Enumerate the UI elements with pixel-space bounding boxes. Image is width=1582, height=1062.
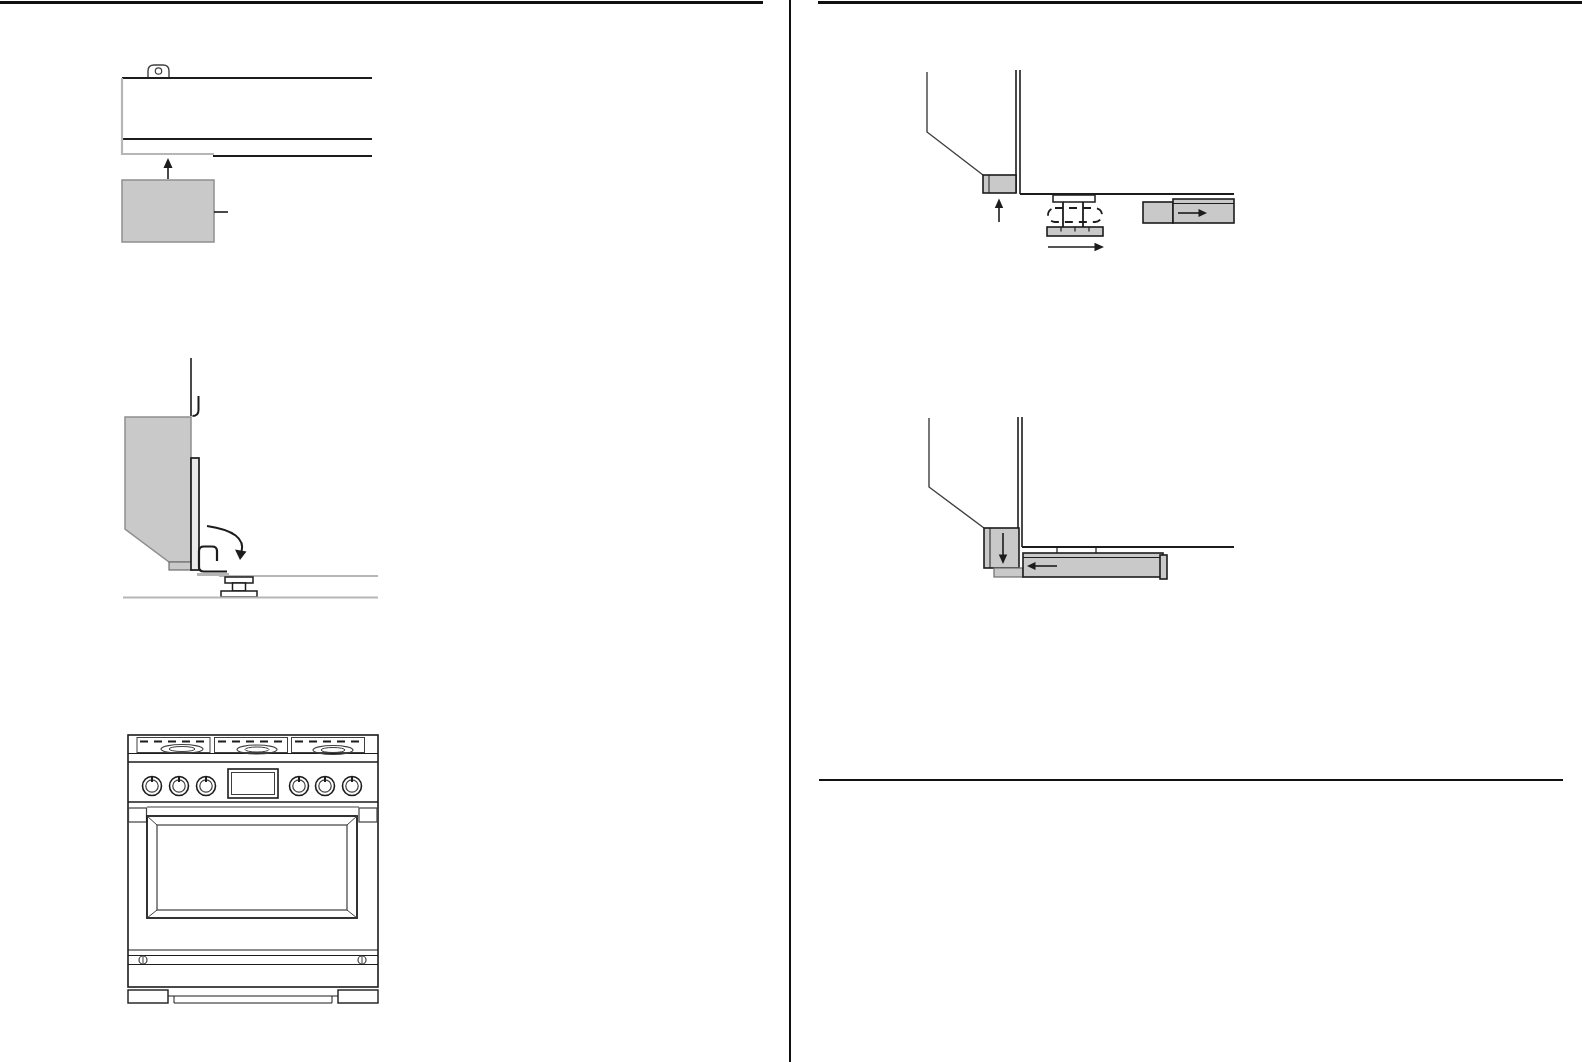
- rotate-down-arrow-icon: [235, 550, 247, 561]
- range-corner-profile: [927, 72, 983, 175]
- control-knobs: [143, 777, 362, 796]
- knob: [343, 777, 362, 796]
- drawer-screw-left: [139, 956, 147, 964]
- control-display: [228, 769, 278, 798]
- corner-bracket: [984, 528, 1019, 568]
- knob: [316, 777, 335, 796]
- foot-plate: [225, 577, 253, 583]
- up-arrow-icon: [995, 199, 1003, 209]
- up-arrow-icon: [164, 158, 173, 168]
- figure-kick-panel-rotate: [123, 358, 378, 598]
- panel-edge: [191, 458, 199, 570]
- knob: [197, 777, 216, 796]
- leg-mount-plate: [1053, 195, 1095, 202]
- dashed-leg-outline: [1048, 208, 1102, 222]
- door-hinge-right: [359, 808, 377, 822]
- cooktop-grate-right: [292, 738, 365, 755]
- figure-leveling-leg-slide: [927, 70, 1234, 251]
- manual-page: [0, 0, 1582, 1062]
- foot-left: [128, 990, 168, 1003]
- kick-plate-block: [1143, 202, 1173, 223]
- drawer-screw-right: [358, 956, 366, 964]
- kick-plate-end-cap: [1160, 555, 1167, 579]
- bracket-foot-strip: [994, 568, 1023, 577]
- foot-stem: [233, 583, 246, 591]
- panel-foot: [169, 562, 192, 570]
- bracket-block: [122, 180, 214, 242]
- cooktop-grate-center: [215, 738, 288, 755]
- figure-kick-plate-attach: [929, 417, 1234, 579]
- tab-hole: [155, 68, 161, 74]
- foot-right: [338, 990, 378, 1003]
- side-panel: [125, 417, 191, 562]
- figure-bracket-slide-up: [122, 65, 372, 242]
- kick-plate-bar: [1023, 553, 1163, 577]
- figure-range-front-view: [128, 735, 378, 1003]
- door-hinge-left: [129, 808, 147, 822]
- range-corner-profile: [929, 418, 984, 528]
- knob: [170, 777, 189, 796]
- hook-bracket: [199, 547, 227, 572]
- foot-base: [221, 591, 257, 597]
- kick-plate-bar: [1173, 199, 1234, 223]
- knob: [290, 777, 309, 796]
- top-hook: [193, 396, 199, 416]
- illustrations: [0, 0, 1582, 1062]
- corner-bracket: [983, 175, 1016, 193]
- cooktop-grate-left: [137, 738, 210, 754]
- knob: [143, 777, 162, 796]
- mounting-tab: [148, 65, 169, 78]
- slide-right-arrow-icon: [1095, 243, 1105, 251]
- oven-door-window: [147, 816, 357, 918]
